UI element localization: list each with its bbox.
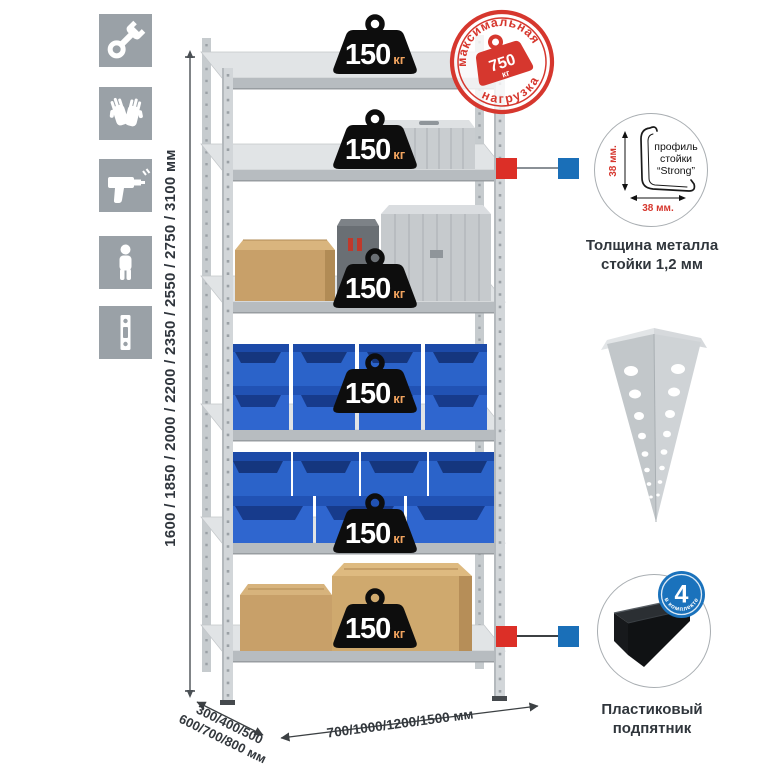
weight-unit: кг	[393, 286, 405, 301]
marker-red-top	[496, 158, 517, 179]
weight-value: 150	[345, 518, 390, 550]
marker-blue-top	[558, 158, 579, 179]
profile-caption-line1: Толщина металла	[567, 236, 737, 255]
shelf-weight-3: 150кг	[319, 248, 431, 312]
included-count-badge: 4 в комплекте	[658, 571, 705, 618]
product-infographic: 1600 / 1850 / 2000 / 2200 / 2350 / 2550 …	[0, 0, 765, 765]
shelf-weight-6: 150кг	[319, 588, 431, 652]
weight-unit: кг	[393, 147, 405, 162]
foot-caption: Пластиковый подпятник	[567, 700, 737, 738]
badge-value: 4	[675, 581, 689, 609]
weight-value: 150	[345, 613, 390, 645]
profile-label-1: профиль	[654, 141, 698, 153]
shelf-weight-4: 150кг	[319, 353, 431, 417]
foot-caption-line2: подпятник	[567, 719, 737, 738]
profile-dim-vertical: 38 мм.	[608, 145, 619, 177]
marker-red-bottom	[496, 626, 517, 647]
profile-dim-horizontal: 38 мм.	[642, 203, 674, 214]
post-profile-detail: 38 мм. профиль стойки “Strong” 38 мм.	[594, 113, 708, 227]
weight-unit: кг	[393, 391, 405, 406]
angle-post-image	[593, 316, 723, 536]
drill-icon	[99, 159, 152, 212]
gloves-icon	[99, 87, 152, 140]
profile-strip-icon	[99, 306, 152, 359]
shelf-weight-2: 150кг	[319, 109, 431, 173]
weight-value: 150	[345, 378, 390, 410]
weight-value: 150	[345, 39, 390, 71]
weight-unit: кг	[393, 531, 405, 546]
profile-label-2: стойки	[660, 153, 692, 165]
height-dimension-label: 1600 / 1850 / 2000 / 2200 / 2350 / 2550 …	[162, 78, 182, 618]
weight-unit: кг	[393, 52, 405, 67]
weight-unit: кг	[393, 626, 405, 641]
wrench-icon	[99, 14, 152, 67]
connector-line-top	[517, 167, 558, 169]
profile-caption: Толщина металла стойки 1,2 мм	[567, 236, 737, 274]
weight-value: 150	[345, 273, 390, 305]
max-load-stamp: максимальная нагрузка 750 кг	[442, 5, 562, 119]
shelf-weight-5: 150кг	[319, 493, 431, 557]
foot-caption-line1: Пластиковый	[567, 700, 737, 719]
profile-label-3: “Strong”	[657, 165, 695, 177]
shelf-weight-1: 150кг	[319, 14, 431, 78]
marker-blue-bottom	[558, 626, 579, 647]
connector-line-bottom	[517, 635, 558, 637]
person-icon	[99, 236, 152, 289]
profile-caption-line2: стойки 1,2 мм	[567, 255, 737, 274]
weight-value: 150	[345, 134, 390, 166]
